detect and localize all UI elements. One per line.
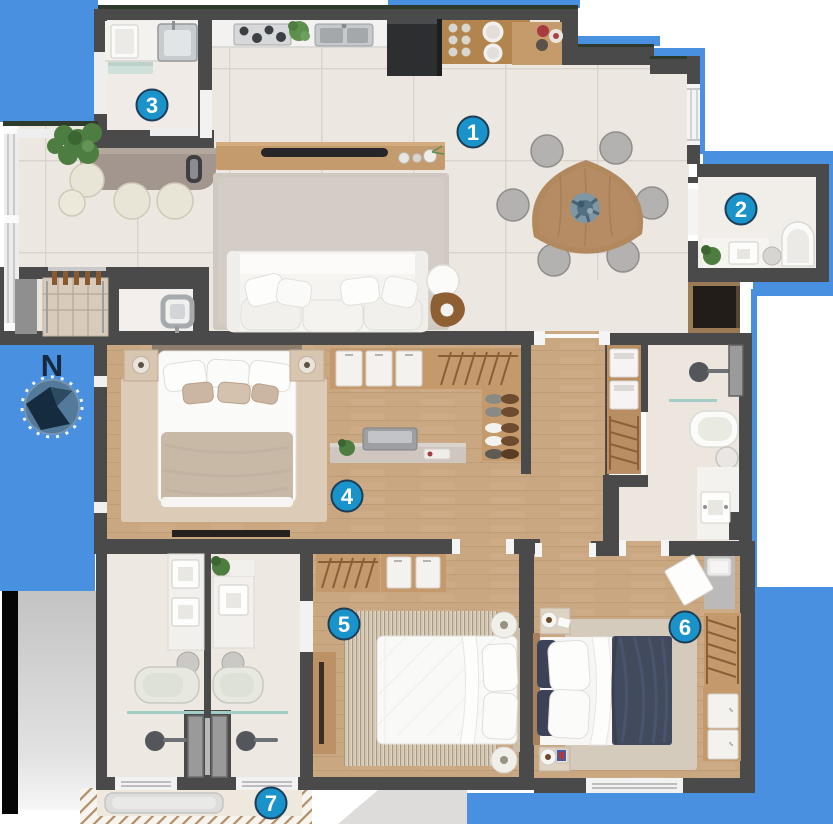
svg-text:4: 4 bbox=[341, 484, 354, 509]
svg-text:3: 3 bbox=[146, 93, 158, 118]
svg-text:5: 5 bbox=[338, 612, 350, 637]
svg-text:2: 2 bbox=[735, 197, 747, 222]
svg-text:7: 7 bbox=[265, 791, 277, 816]
svg-text:6: 6 bbox=[679, 615, 691, 640]
svg-text:1: 1 bbox=[467, 120, 479, 145]
